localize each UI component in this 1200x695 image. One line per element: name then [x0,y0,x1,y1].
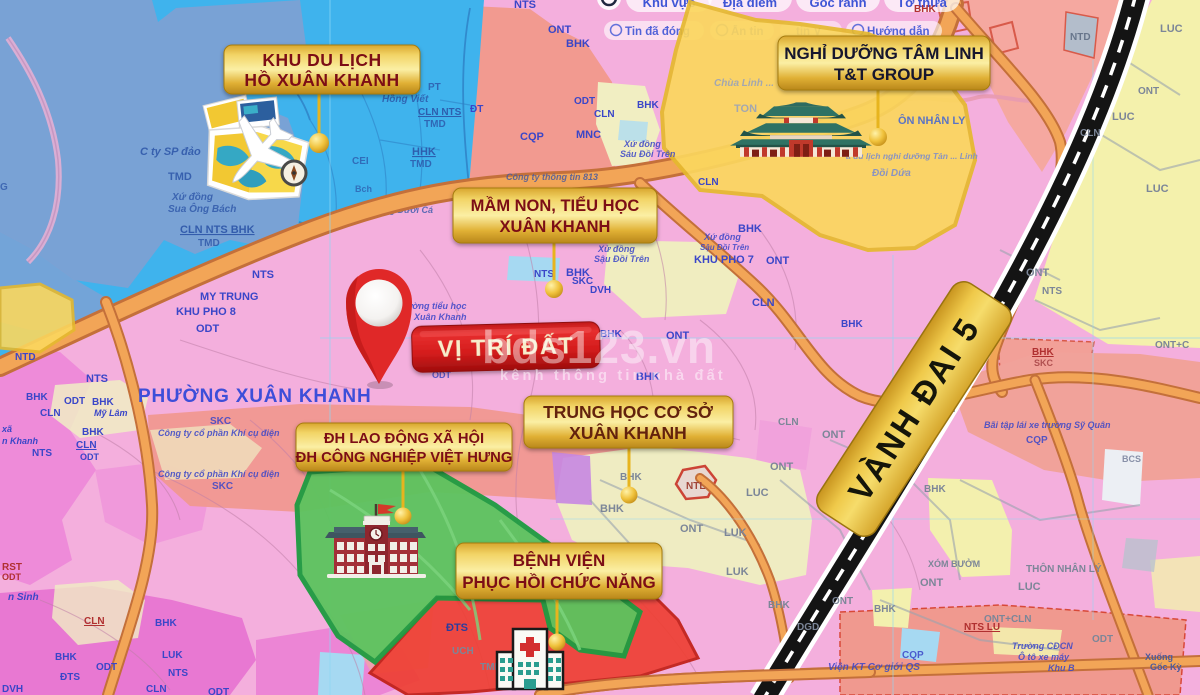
svg-text:ONT: ONT [770,461,794,473]
svg-text:ONT: ONT [1138,86,1159,97]
svg-text:Gốc Kỳ: Gốc Kỳ [1150,662,1182,672]
svg-text:ONT: ONT [1026,267,1050,279]
svg-text:PT: PT [428,82,441,93]
svg-text:xã: xã [1,424,12,434]
svg-text:NTD: NTD [15,352,36,363]
svg-text:kênh thông tin nhà đất: kênh thông tin nhà đất [500,368,726,384]
svg-text:NTL: NTL [686,481,705,492]
svg-text:ường tiểu học: ường tiểu học [406,301,466,311]
svg-text:Mỹ Lâm: Mỹ Lâm [94,408,128,418]
svg-text:ODT: ODT [96,662,117,673]
svg-text:ĐTS: ĐTS [60,672,80,683]
svg-text:BỆNH VIỆN: BỆNH VIỆN [513,551,606,570]
svg-text:BHK: BHK [841,319,863,330]
svg-text:bds123.vn: bds123.vn [482,321,716,373]
svg-text:NTD: NTD [1070,32,1091,43]
svg-text:ÔN NHÂN LY: ÔN NHÂN LY [898,114,966,127]
svg-text:CLN: CLN [1080,128,1101,139]
svg-text:XUÂN KHANH: XUÂN KHANH [569,422,687,443]
svg-text:NGHỈ DƯỠNG TÂM LINH: NGHỈ DƯỠNG TÂM LINH [784,43,984,63]
svg-text:ONT: ONT [822,429,846,441]
svg-text:Hồng Viết: Hồng Viết [382,93,429,105]
svg-text:Công ty cổ phần Khí cụ điện: Công ty cổ phần Khí cụ điện [158,469,280,479]
svg-text:G: G [0,182,8,193]
svg-text:MNC: MNC [576,129,601,141]
svg-text:Địa điểm: Địa điểm [723,0,777,10]
svg-text:BHK: BHK [637,100,659,111]
svg-text:ONT: ONT [548,24,572,36]
svg-text:ODT: ODT [196,323,220,335]
svg-text:NTS: NTS [514,0,536,11]
svg-text:BHK: BHK [738,223,762,235]
svg-text:ONT: ONT [920,577,944,589]
svg-text:CQP: CQP [1026,435,1048,446]
svg-text:SKC: SKC [1034,358,1054,368]
svg-text:Đồi Dứa: Đồi Dứa [872,167,911,179]
svg-text:DGD: DGD [797,622,819,633]
svg-text:SKC: SKC [210,416,231,427]
svg-text:LUC: LUC [1160,23,1183,35]
svg-text:T&T GROUP: T&T GROUP [834,65,934,84]
svg-text:BHK: BHK [566,38,590,50]
svg-text:LUC: LUC [1018,581,1041,593]
svg-text:DVH: DVH [2,684,23,695]
svg-text:Bãi tập lái xe trường Sỹ Quân: Bãi tập lái xe trường Sỹ Quân [984,420,1111,430]
svg-text:NTS: NTS [32,448,52,459]
svg-text:NTS: NTS [252,269,274,281]
svg-text:ĐH LAO ĐỘNG XÃ HỘI: ĐH LAO ĐỘNG XÃ HỘI [324,429,484,447]
svg-text:NTS LU: NTS LU [964,622,1000,633]
svg-text:PHỤC HỒI CHỨC NĂNG: PHỤC HỒI CHỨC NĂNG [462,573,656,592]
svg-text:BHK: BHK [1032,347,1054,358]
svg-text:Xứ đồng: Xứ đồng [703,232,741,242]
svg-text:CLN NTS: CLN NTS [418,107,462,118]
svg-text:BHK: BHK [620,472,642,483]
svg-text:Xứ đồng: Xứ đồng [623,139,661,149]
svg-text:NTS: NTS [1042,286,1062,297]
svg-text:TON: TON [734,103,757,115]
svg-text:Góc ranh: Góc ranh [809,0,866,10]
svg-text:ONT: ONT [832,596,853,607]
svg-text:MY TRUNG: MY TRUNG [200,291,258,303]
svg-text:LUC: LUC [1146,183,1169,195]
svg-text:CLN NTS BHK: CLN NTS BHK [180,224,255,236]
svg-text:NTS: NTS [86,373,108,385]
svg-text:SKC: SKC [212,481,233,492]
svg-text:Chùa Linh ...: Chùa Linh ... [714,78,774,89]
svg-text:CLN: CLN [594,109,615,120]
svg-text:TRUNG HỌC CƠ SỞ: TRUNG HỌC CƠ SỞ [543,401,713,422]
svg-text:ĐT: ĐT [470,104,483,115]
svg-text:Xuân Khanh: Xuân Khanh [413,312,467,322]
svg-text:ODT: ODT [64,396,85,407]
svg-text:BHK: BHK [155,618,177,629]
svg-text:TMD: TMD [424,119,446,130]
svg-text:TMD: TMD [410,159,432,170]
svg-text:DVH: DVH [590,285,611,296]
svg-text:CQP: CQP [902,650,924,661]
svg-text:LUC: LUC [746,487,769,499]
svg-text:Khu B: Khu B [1048,663,1075,673]
svg-text:HHK: HHK [412,146,436,158]
svg-text:Viện KT Cơ giới QS: Viện KT Cơ giới QS [828,662,920,673]
svg-text:Công ty cổ phần Khí cụ điện: Công ty cổ phần Khí cụ điện [158,428,280,438]
svg-text:MẦM NON, TIỂU HỌC: MẦM NON, TIỂU HỌC [471,196,640,215]
svg-text:Xử đồng: Xử đồng [597,244,635,254]
svg-text:ODT: ODT [1092,634,1113,645]
svg-text:CLN: CLN [40,408,61,419]
svg-text:NTS: NTS [534,269,554,280]
svg-text:ONT+C: ONT+C [1155,340,1189,351]
svg-text:TMD: TMD [168,171,192,183]
svg-text:PHƯỜNG XUÂN KHANH: PHƯỜNG XUÂN KHANH [138,385,371,407]
svg-text:BHK: BHK [92,397,114,408]
svg-text:LUK: LUK [162,650,183,661]
svg-text:CLN: CLN [778,417,799,428]
svg-text:C ty SP đảo: C ty SP đảo [140,146,201,158]
svg-text:KHU DU LỊCH: KHU DU LỊCH [262,50,381,70]
svg-text:Sậu Đồi Trên: Sậu Đồi Trên [700,243,749,252]
svg-text:LUC: LUC [1112,111,1135,123]
svg-text:ODT: ODT [80,452,100,462]
svg-text:ODT: ODT [2,572,22,582]
svg-text:KHU PHO 8: KHU PHO 8 [176,306,236,318]
svg-text:BHK: BHK [768,600,790,611]
svg-text:Công ty thông tin 813: Công ty thông tin 813 [506,172,598,182]
svg-text:KHU PHO 7: KHU PHO 7 [694,254,754,266]
svg-text:LUK: LUK [724,527,747,539]
svg-text:ĐTS: ĐTS [446,622,468,634]
svg-text:CLN: CLN [752,297,775,309]
svg-text:BHK: BHK [600,503,624,515]
svg-text:ONT: ONT [766,255,790,267]
svg-text:XUÂN KHANH: XUÂN KHANH [500,217,611,236]
svg-text:CLN: CLN [76,440,97,451]
svg-text:CLN: CLN [698,177,719,188]
svg-text:THÔN NHÂN LÝ: THÔN NHÂN LÝ [1026,562,1102,575]
svg-text:Trường CĐCN: Trường CĐCN [1012,641,1073,651]
svg-text:BHK: BHK [924,484,946,495]
svg-text:Sua Ông Bách: Sua Ông Bách [168,202,236,215]
svg-text:BHK: BHK [82,427,104,438]
svg-text:ĐH CÔNG NGHIỆP VIỆT HƯNG: ĐH CÔNG NGHIỆP VIỆT HƯNG [296,448,513,466]
svg-text:Sậu Đồi Trên: Sậu Đồi Trên [594,254,650,264]
svg-text:à du lịch nghỉ dưỡng Tản ... L: à du lịch nghỉ dưỡng Tản ... Linh [846,151,978,161]
svg-text:BHK: BHK [26,392,48,403]
svg-text:Xuống: Xuống [1145,652,1173,662]
svg-text:BHK: BHK [55,652,77,663]
svg-text:Xứ đồng: Xứ đồng [171,191,213,203]
svg-text:TMD: TMD [198,238,220,249]
svg-text:CLN: CLN [84,616,105,627]
svg-text:XÓM BƯỞM: XÓM BƯỞM [928,558,980,569]
svg-text:UCH: UCH [452,646,474,657]
svg-text:BHK: BHK [914,4,936,15]
svg-text:ODT: ODT [574,96,595,107]
svg-text:ONT: ONT [680,523,704,535]
svg-text:CQP: CQP [520,131,544,143]
svg-text:n Sinh: n Sinh [8,592,39,603]
svg-text:NTS: NTS [168,668,188,679]
svg-text:Bch: Bch [355,184,372,194]
svg-text:BHK: BHK [874,604,896,615]
svg-text:CEI: CEI [352,156,369,167]
svg-text:CLN: CLN [146,684,167,695]
svg-text:HỒ XUÂN KHANH: HỒ XUÂN KHANH [244,69,399,90]
svg-text:BCS: BCS [1122,454,1141,464]
svg-text:ODT: ODT [208,687,229,695]
svg-text:LUK: LUK [726,566,749,578]
svg-text:n Khanh: n Khanh [2,436,38,446]
svg-text:Ô tô xe máy: Ô tô xe máy [1018,651,1070,662]
svg-text:Sáu Đồi Trên: Sáu Đồi Trên [620,149,676,159]
